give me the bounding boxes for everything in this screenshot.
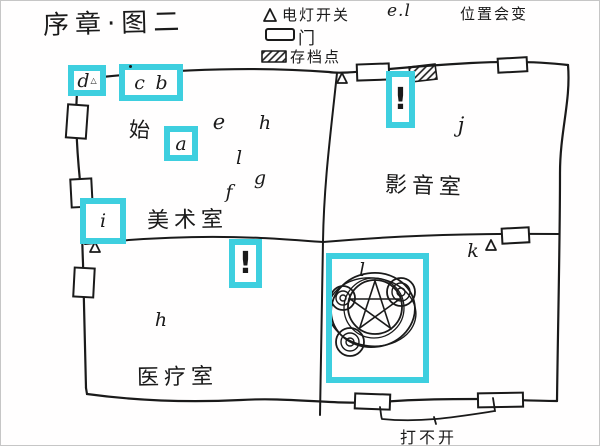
locked-door-note: 打不开 — [400, 424, 457, 446]
light-switch-icon: △ — [91, 76, 97, 85]
door-bottom-right — [478, 393, 523, 408]
marker-j: j — [458, 113, 465, 137]
marker-k: k — [467, 240, 479, 262]
legend-light-switch-label: 电灯开关 — [282, 4, 350, 25]
marker-alert-art: ! — [239, 249, 253, 279]
marker-d: d — [77, 70, 89, 92]
highlight-box-d: d△ — [68, 65, 106, 96]
marker-alert-av: ! — [394, 85, 408, 115]
door-top-right — [498, 57, 528, 72]
hand-drawn-map: 序章·图二 电灯开关 e.l 位置会变 门 存档点 美术室 影音室 医疗室 始 … — [0, 0, 600, 446]
marker-f: f — [225, 181, 232, 203]
marker-b: b — [156, 72, 168, 94]
legend-position-changes-label: 位置会变 — [460, 3, 528, 24]
legend-el-symbol: e.l — [387, 1, 411, 21]
page-title: 序章·图二 — [43, 1, 186, 42]
legend-triangle-icon — [264, 9, 276, 21]
highlight-box-ritual — [326, 253, 429, 383]
marker-h-top: h — [259, 112, 271, 134]
ink-dot — [129, 65, 132, 68]
marker-h-medical: h — [155, 309, 167, 331]
door-top-center — [357, 63, 390, 80]
door-left-1 — [66, 104, 88, 138]
room-label-av: 影音室 — [384, 167, 466, 202]
marker-g: g — [254, 167, 266, 189]
legend-save-icon — [262, 51, 286, 62]
door-left-3 — [73, 267, 94, 297]
door-bottom-center — [355, 393, 391, 409]
highlight-box-i: i — [80, 198, 126, 244]
light-switch-av — [337, 73, 347, 83]
marker-i: i — [100, 210, 106, 232]
marker-e: e — [213, 110, 225, 134]
room-label-medical: 医疗室 — [137, 358, 219, 391]
marker-c: c — [134, 72, 145, 94]
room-label-art: 美术室 — [147, 201, 229, 234]
start-position-label: 始 — [128, 113, 151, 144]
door-mid-right — [502, 227, 530, 243]
light-switch-k — [486, 240, 496, 250]
legend-door-icon — [266, 29, 294, 40]
marker-a: a — [175, 133, 186, 155]
highlight-box-alert-av: ! — [386, 71, 415, 128]
legend-save-point-label: 存档点 — [290, 46, 341, 67]
door-markers — [66, 57, 530, 409]
highlight-box-alert-art: ! — [229, 239, 262, 288]
marker-l-top: l — [236, 147, 242, 169]
highlight-box-a: a — [164, 126, 198, 161]
highlight-box-cb: c b — [119, 64, 183, 101]
